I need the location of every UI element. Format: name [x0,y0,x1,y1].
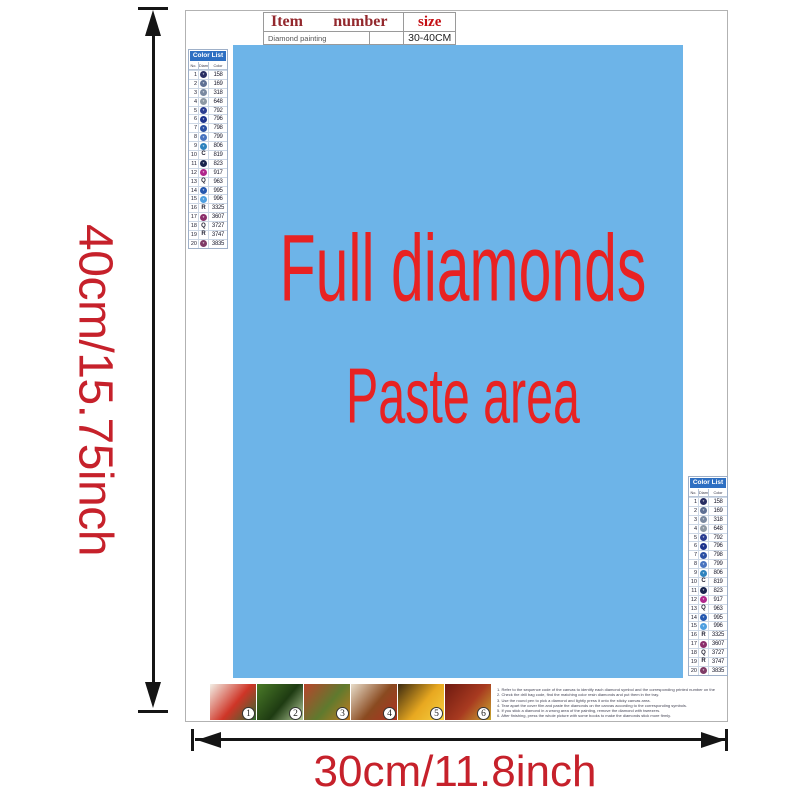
dmc-color-code: 158 [209,72,227,78]
step-thumbnail: 2 [257,684,303,720]
row-number: 16 [689,632,698,638]
row-number: 19 [689,659,698,665]
dmc-color-code: 917 [709,597,727,603]
row-number: 15 [189,196,198,202]
color-list-rows: 1*1582*1693*3184*6485*7926*7967*7988*799… [689,497,727,675]
paste-area-title-line1: Full diamonds [279,215,646,324]
diamond-symbol-icon: * [200,107,207,114]
row-number: 6 [689,543,698,549]
item-header: Item [271,13,303,31]
color-list-row: 17*3607 [189,212,227,221]
color-list-title: Color List [190,51,226,61]
row-number: 4 [689,526,698,532]
row-number: 1 [689,499,698,505]
diamond-symbol-cell: * [198,187,209,195]
diamond-symbol-cell: * [698,507,709,515]
dmc-color-code: 318 [709,517,727,523]
color-list-row: 7*798 [689,550,727,559]
row-number: 20 [689,668,698,674]
color-list-row: 20*3835 [189,239,227,248]
diamond-symbol-cell: Q [198,178,209,186]
product-dimension-diagram: 40cm/15.75inch Item number size Diamond … [0,0,800,800]
step-number-badge: 1 [242,707,255,720]
diamond-symbol-cell: R [698,658,709,666]
diamond-symbol-cell: * [698,614,709,622]
diamond-symbol-cell: * [198,124,209,132]
row-number: 2 [189,81,198,87]
color-list-row: 13Q963 [189,177,227,186]
dmc-color-code: 318 [209,90,227,96]
diamond-symbol-cell: C [198,151,209,159]
dmc-color-code: 158 [709,499,727,505]
diamond-symbol-cell: Q [698,605,709,613]
diamond-symbol-icon: * [700,552,707,559]
step-thumbnail: 6 [445,684,491,720]
diamond-symbol-cell: * [198,98,209,106]
dmc-color-code: 963 [209,179,227,185]
diamond-symbol-cell: * [698,525,709,533]
row-number: 1 [189,72,198,78]
dmc-color-code: 3835 [209,241,227,247]
color-list-row: 16R3325 [189,203,227,212]
step-thumbnail: 4 [351,684,397,720]
row-number: 11 [189,161,198,167]
color-list-row: 18Q3727 [189,221,227,230]
row-number: 18 [189,223,198,229]
color-list-row: 9*806 [189,141,227,150]
row-number: 15 [689,623,698,629]
diamond-symbol-cell: * [198,115,209,123]
diamond-symbol-letter: C [201,151,205,158]
dmc-color-code: 3747 [209,232,227,238]
height-dimension-label: 40cm/15.75inch [68,224,123,556]
diamond-symbol-cell: R [198,204,209,212]
diamond-symbol-cell: * [698,560,709,568]
dmc-color-code: 792 [209,108,227,114]
diamond-symbol-cell: R [698,631,709,639]
color-list-row: 5*792 [189,106,227,115]
diamond-symbol-icon: * [200,71,207,78]
diamond-symbol-cell: * [698,551,709,559]
color-list-left: Color List No. Diamond Color 1*1582*1693… [188,49,228,249]
diamond-symbol-cell: * [198,195,209,203]
width-arrow-left-cap [191,729,194,751]
diamond-symbol-icon: * [700,667,707,674]
color-list-column-headers: No. Diamond Color [689,489,727,497]
diamond-symbol-cell: * [198,107,209,115]
step-thumbnail: 3 [304,684,350,720]
dmc-color-code: 3325 [709,632,727,638]
diamond-symbol-icon: * [200,89,207,96]
height-arrow-line [152,22,155,698]
height-arrow-bottom-cap [138,710,168,713]
diamond-symbol-cell: * [198,240,209,248]
diamond-symbol-icon: * [700,516,707,523]
dmc-color-code: 798 [709,552,727,558]
color-list-row: 12*917 [189,168,227,177]
row-number: 8 [689,561,698,567]
paste-area-title-line2: Paste area [346,351,580,442]
dmc-color-code: 648 [709,526,727,532]
row-number: 4 [189,99,198,105]
color-list-row: 2*169 [689,506,727,515]
diamond-symbol-cell: * [198,160,209,168]
diamond-symbol-icon: * [200,169,207,176]
color-list-row: 1*158 [689,497,727,506]
color-list-rows: 1*1582*1693*3184*6485*7926*7967*7988*799… [189,70,227,248]
dmc-color-code: 819 [709,579,727,585]
diamond-symbol-icon: * [700,641,707,648]
dmc-color-code: 3325 [209,205,227,211]
col-diamond: Diamond [198,62,209,69]
row-number: 5 [189,108,198,114]
row-number: 20 [189,241,198,247]
row-number: 11 [689,588,698,594]
diamond-symbol-letter: R [701,632,705,639]
color-list-row: 9*806 [689,568,727,577]
number-header: number [333,13,387,31]
dmc-color-code: 799 [709,561,727,567]
diamond-symbol-icon: * [200,80,207,87]
diamond-symbol-letter: Q [201,178,206,185]
col-color: Color [209,64,227,68]
row-number: 7 [189,125,198,131]
step-number-badge: 6 [477,707,490,720]
color-list-row: 10C819 [189,150,227,159]
diamond-symbol-cell: * [698,640,709,648]
diamond-symbol-icon: * [700,623,707,630]
item-value: Diamond painting [264,32,370,45]
dmc-color-code: 798 [209,125,227,131]
step-number-badge: 5 [430,707,443,720]
color-list-row: 5*792 [689,533,727,542]
diamond-symbol-icon: * [200,196,207,203]
dmc-color-code: 796 [709,543,727,549]
row-number: 9 [689,570,698,576]
row-number: 2 [689,508,698,514]
diamond-symbol-cell: * [198,80,209,88]
diamond-symbol-icon: * [700,570,707,577]
color-list-column-headers: No. Diamond Color [189,62,227,70]
color-list-row: 4*648 [689,524,727,533]
diamond-symbol-cell: C [698,578,709,586]
step-thumbnail: 1 [210,684,256,720]
color-list-row: 14*995 [189,186,227,195]
dmc-color-code: 995 [209,188,227,194]
row-number: 13 [689,606,698,612]
dmc-color-code: 792 [709,535,727,541]
diamond-symbol-cell: * [198,133,209,141]
step-thumbnails: 123456 [210,684,491,720]
color-list-row: 19R3747 [189,230,227,239]
arrow-left-icon [197,732,221,748]
diamond-symbol-icon: * [200,160,207,167]
diamond-symbol-icon: * [200,134,207,141]
diamond-symbol-icon: * [700,498,707,505]
row-number: 3 [189,90,198,96]
row-number: 17 [189,214,198,220]
dmc-color-code: 996 [209,196,227,202]
color-list-right: Color List No. Diamond Color 1*1582*1693… [688,476,728,676]
diamond-symbol-icon: * [700,561,707,568]
dmc-color-code: 819 [209,152,227,158]
number-value [369,32,404,45]
color-list-row: 8*799 [689,559,727,568]
row-number: 18 [689,650,698,656]
dmc-color-code: 3727 [209,223,227,229]
color-list-row: 11*823 [189,159,227,168]
color-list-row: 1*158 [189,70,227,79]
diamond-symbol-icon: * [200,240,207,247]
dmc-color-code: 3835 [709,668,727,674]
row-number: 8 [189,134,198,140]
diamond-symbol-icon: * [700,587,707,594]
diamond-symbol-letter: Q [701,605,706,612]
col-diamond: Diamond [698,489,709,496]
color-list-row: 3*318 [689,515,727,524]
color-list-row: 2*169 [189,79,227,88]
diamond-symbol-cell: Q [198,222,209,230]
dmc-color-code: 799 [209,134,227,140]
row-number: 9 [189,143,198,149]
color-list-title: Color List [690,478,726,488]
color-list-row: 6*796 [689,541,727,550]
diamond-symbol-icon: * [200,143,207,150]
dmc-color-code: 806 [709,570,727,576]
row-number: 12 [689,597,698,603]
color-list-row: 7*798 [189,123,227,132]
diamond-symbol-cell: * [698,542,709,550]
arrow-right-icon [701,732,725,748]
diamond-symbol-cell: * [198,169,209,177]
row-number: 10 [189,152,198,158]
dmc-color-code: 796 [209,116,227,122]
width-dimension-label: 30cm/11.8inch [314,747,597,797]
row-number: 14 [689,615,698,621]
diamond-symbol-cell: * [698,622,709,630]
color-list-row: 8*799 [189,132,227,141]
color-list-row: 17*3607 [689,639,727,648]
diamond-symbol-icon: * [200,116,207,123]
diamond-symbol-icon: * [700,543,707,550]
row-number: 10 [689,579,698,585]
color-list-row: 16R3325 [689,630,727,639]
dmc-color-code: 169 [709,508,727,514]
canvas-sheet: Item number size Diamond painting 30-40C… [185,10,728,722]
diamond-symbol-icon: * [700,614,707,621]
diamond-symbol-icon: * [200,125,207,132]
item-table-header-row: Item number size [264,13,456,32]
instruction-text-block: 1. Refer to the sequence code of the can… [497,687,715,719]
dmc-color-code: 3747 [709,659,727,665]
diamond-symbol-cell: * [198,71,209,79]
color-list-row: 4*648 [189,97,227,106]
size-header: size [404,13,456,32]
dmc-color-code: 169 [209,81,227,87]
size-value: 30-40CM [404,32,456,45]
color-list-row: 3*318 [189,88,227,97]
color-list-row: 14*995 [689,613,727,622]
color-list-row: 11*823 [689,586,727,595]
row-number: 14 [189,188,198,194]
width-arrow-line [195,738,727,741]
row-number: 12 [189,170,198,176]
dmc-color-code: 823 [209,161,227,167]
dmc-color-code: 3607 [709,641,727,647]
color-list-row: 15*996 [189,194,227,203]
diamond-symbol-cell: * [698,569,709,577]
diamond-symbol-cell: * [198,142,209,150]
color-list-row: 12*917 [689,595,727,604]
row-number: 7 [689,552,698,558]
color-list-row: 10C819 [689,577,727,586]
row-number: 6 [189,116,198,122]
diamond-symbol-letter: Q [701,650,706,657]
diamond-symbol-icon: * [200,214,207,221]
diamond-symbol-cell: * [698,534,709,542]
row-number: 16 [189,205,198,211]
row-number: 13 [189,179,198,185]
diamond-symbol-cell: * [198,89,209,97]
dmc-color-code: 823 [709,588,727,594]
row-number: 17 [689,641,698,647]
color-list-row: 13Q963 [689,604,727,613]
step-number-badge: 2 [289,707,302,720]
item-info-table: Item number size Diamond painting 30-40C… [263,12,456,45]
diamond-symbol-cell: * [698,587,709,595]
dmc-color-code: 3727 [709,650,727,656]
color-list-row: 6*796 [189,114,227,123]
arrow-down-icon [145,682,161,708]
col-no: No. [689,491,698,495]
dmc-color-code: 3607 [209,214,227,220]
dmc-color-code: 806 [209,143,227,149]
row-number: 5 [689,535,698,541]
diamond-symbol-letter: R [201,205,205,212]
step-number-badge: 3 [336,707,349,720]
instruction-line: 6. After finishing, press the whole pict… [497,713,715,718]
color-list-row: 15*996 [689,621,727,630]
diamond-symbol-icon: * [200,187,207,194]
diamond-symbol-cell: * [698,498,709,506]
diamond-symbol-cell: * [698,516,709,524]
step-thumbnail: 5 [398,684,444,720]
item-table-value-row: Diamond painting 30-40CM [264,32,456,45]
width-arrow-right-cap [725,729,728,751]
arrow-up-icon [145,10,161,36]
diamond-symbol-letter: C [701,578,705,585]
dmc-color-code: 963 [709,606,727,612]
diamond-symbol-cell: * [698,667,709,675]
dmc-color-code: 648 [209,99,227,105]
col-color: Color [709,491,727,495]
diamond-symbol-cell: Q [698,649,709,657]
dmc-color-code: 996 [709,623,727,629]
row-number: 3 [689,517,698,523]
diamond-symbol-letter: Q [201,223,206,230]
diamond-symbol-icon: * [700,596,707,603]
dmc-color-code: 995 [709,615,727,621]
diamond-symbol-letter: R [201,231,205,238]
paste-area: Full diamonds Paste area [233,45,683,678]
diamond-symbol-icon: * [700,525,707,532]
color-list-row: 18Q3727 [689,648,727,657]
color-list-row: 19R3747 [689,657,727,666]
color-list-row: 20*3835 [689,666,727,675]
diamond-symbol-icon: * [700,534,707,541]
diamond-symbol-icon: * [700,507,707,514]
col-no: No. [189,64,198,68]
diamond-symbol-icon: * [200,98,207,105]
diamond-symbol-cell: * [698,596,709,604]
row-number: 19 [189,232,198,238]
diamond-symbol-cell: * [198,213,209,221]
dmc-color-code: 917 [209,170,227,176]
step-number-badge: 4 [383,707,396,720]
diamond-symbol-cell: R [198,231,209,239]
diamond-symbol-letter: R [701,658,705,665]
